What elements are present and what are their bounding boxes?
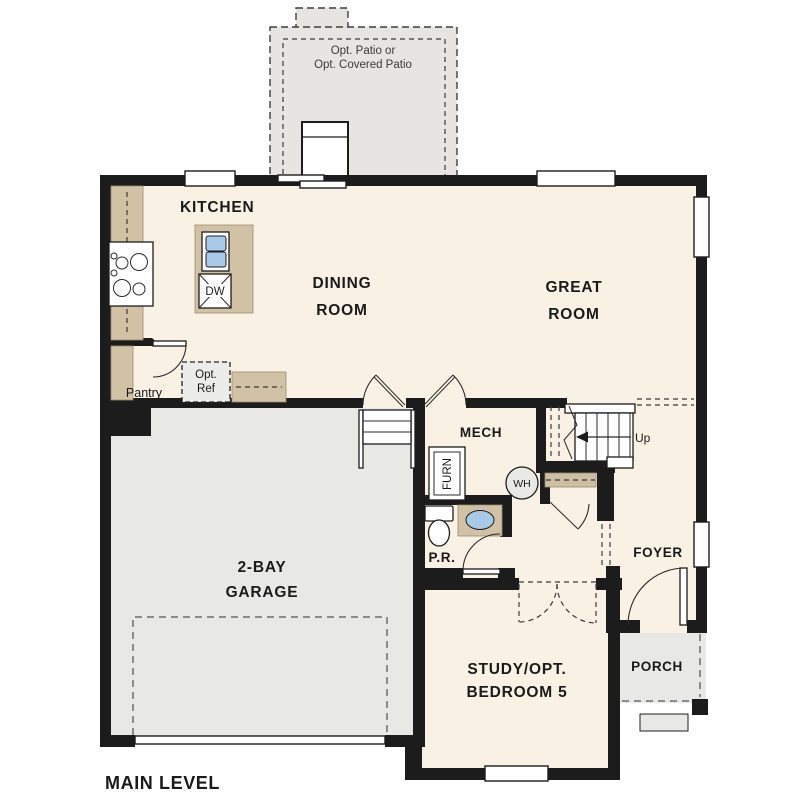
wall-study-top-left [418, 578, 519, 590]
wall-garage-bottom-left [100, 735, 135, 747]
dishwasher-label: DW [205, 286, 224, 298]
wall-garage-notch [111, 408, 151, 436]
front-door-leaf [680, 568, 687, 625]
wall-study-right [608, 578, 620, 780]
stair-handrail-top [565, 404, 635, 413]
patio-chimney-bump [296, 8, 348, 28]
study-floor [415, 583, 615, 773]
foyer-window [694, 522, 709, 567]
up-label: Up [635, 431, 651, 445]
furnace-label: FURN [442, 458, 454, 490]
patio-label-line1: Opt. Patio or [331, 45, 396, 57]
plan-title: MAIN LEVEL [105, 773, 220, 793]
pantry-label: Pantry [126, 386, 163, 400]
floor-plan: Opt. Patio or Opt. Covered Patio [0, 0, 810, 810]
sink-basin-icon [206, 236, 226, 251]
porch-corner-post [692, 699, 708, 715]
garage-overhead-door [135, 736, 385, 744]
dining-room-label-line2: ROOM [316, 302, 367, 319]
floor-plan-drawing: Opt. Patio or Opt. Covered Patio [0, 0, 810, 810]
wall-mech-right [536, 398, 546, 470]
garage-label-line2: GARAGE [226, 584, 299, 601]
garage-label-line1: 2-BAY [237, 559, 286, 576]
optional-refrigerator [182, 362, 230, 402]
stair-handrail-bottom [607, 457, 633, 468]
wall-closet-column [597, 461, 614, 521]
sliding-door-panel-2 [300, 181, 346, 188]
kitchen-window [185, 171, 235, 186]
patio-label-line2: Opt. Covered Patio [314, 59, 412, 71]
steps-icon [363, 410, 411, 444]
foyer-label: FOYER [633, 545, 683, 560]
opt-ref-label-line2: Ref [197, 383, 216, 395]
water-heater-label: WH [513, 478, 531, 490]
great-room-side-window [694, 197, 709, 257]
pr-door-threshold [463, 569, 500, 574]
great-room-top-window [537, 171, 615, 186]
dining-room-label-line1: DINING [312, 275, 371, 292]
pantry-door-leaf [153, 341, 186, 346]
study-label-line2: BEDROOM 5 [466, 684, 567, 701]
wall-study-bottom-right [548, 768, 620, 780]
toilet-tank-icon [425, 506, 453, 521]
stove-icon [109, 242, 153, 306]
study-window [485, 766, 548, 781]
study-label-line1: STUDY/OPT. [467, 661, 566, 678]
fireplace-icon [302, 122, 348, 182]
opt-ref-label-line1: Opt. [195, 369, 217, 381]
wall-mech-top [466, 398, 567, 408]
closet-shelf [545, 473, 596, 487]
porch-label: PORCH [631, 659, 683, 674]
wall-garage-bottom-right [385, 735, 425, 747]
mech-label: MECH [460, 425, 502, 440]
great-room-label-line2: ROOM [548, 306, 599, 323]
wall-front-right [687, 620, 707, 633]
porch-step [640, 714, 688, 731]
kitchen-label: KITCHEN [180, 199, 255, 216]
wall-front-left [608, 620, 640, 633]
toilet-bowl-icon [429, 520, 450, 546]
optional-patio: Opt. Patio or Opt. Covered Patio [270, 8, 457, 183]
powder-room-label: P.R. [429, 550, 456, 565]
great-room-label-line1: GREAT [545, 279, 602, 296]
vanity-sink-icon [466, 511, 494, 530]
sink-basin-icon [206, 252, 226, 267]
